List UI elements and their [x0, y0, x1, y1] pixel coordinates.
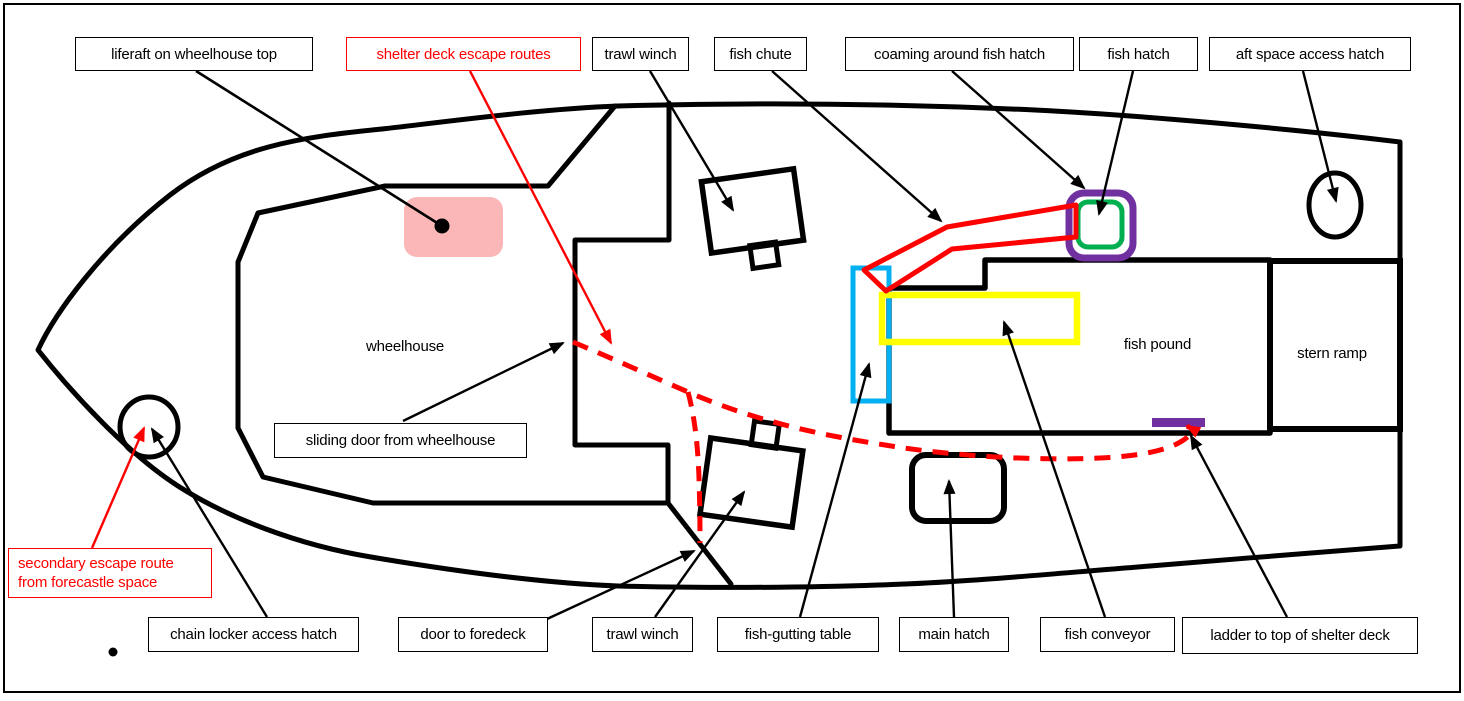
- secondary-escape-line-1: secondary escape route: [18, 554, 174, 574]
- main-hatch-shape: [912, 455, 1004, 521]
- arrow-main-hatch: [949, 481, 954, 617]
- label-liferaft-on-wheelhouse-top: liferaft on wheelhouse top: [75, 37, 313, 71]
- stray-mark: [109, 648, 118, 657]
- deck-text-stern-ramp: stern ramp: [1272, 343, 1392, 363]
- trawl-winch-bottom-shape: [700, 415, 806, 527]
- label-fish-conveyor: fish conveyor: [1040, 617, 1175, 652]
- arrow-ladder: [1191, 436, 1287, 617]
- fish-conveyor-shape: [882, 295, 1077, 342]
- arrow-fish-gutting-table: [800, 364, 869, 617]
- chain-locker-hatch-shape: [120, 397, 178, 457]
- arrow-coaming: [952, 71, 1084, 188]
- arrow-liferaft: [196, 71, 442, 226]
- deck-plan-drawing: [0, 0, 1464, 701]
- aft-space-hatch-shape: [1309, 173, 1361, 237]
- label-fish-hatch: fish hatch: [1079, 37, 1198, 71]
- arrow-trawl-winch-top: [650, 71, 733, 210]
- secondary-escape-line-2: from forecastle space: [18, 573, 157, 593]
- liferaft-locator-dot: [435, 219, 450, 234]
- vessel-escape-routes-diagram: liferaft on wheelhouse top shelter deck …: [0, 0, 1464, 701]
- label-trawl-winch-bottom: trawl winch: [592, 617, 693, 652]
- label-main-hatch: main hatch: [899, 617, 1009, 652]
- wheelhouse-outline: [238, 106, 731, 584]
- label-coaming-around-fish-hatch: coaming around fish hatch: [845, 37, 1074, 71]
- deck-text-wheelhouse: wheelhouse: [345, 336, 465, 356]
- label-shelter-deck-escape-routes: shelter deck escape routes: [346, 37, 581, 71]
- arrow-secondary-escape-route: [92, 428, 144, 548]
- ladder-shape: [1152, 418, 1205, 427]
- label-fish-gutting-table: fish-gutting table: [717, 617, 879, 652]
- label-ladder-to-top-of-shelter-deck: ladder to top of shelter deck: [1182, 617, 1418, 654]
- label-fish-chute: fish chute: [714, 37, 807, 71]
- liferaft-pad: [404, 197, 503, 257]
- label-door-to-foredeck: door to foredeck: [398, 617, 548, 652]
- label-chain-locker-access-hatch: chain locker access hatch: [148, 617, 359, 652]
- fish-chute-shape: [864, 205, 1076, 291]
- label-sliding-door-from-wheelhouse: sliding door from wheelhouse: [274, 423, 527, 458]
- escape-route-foredeck-dashed: [688, 392, 700, 543]
- label-aft-space-access-hatch: aft space access hatch: [1209, 37, 1411, 71]
- deck-text-fish-pound: fish pound: [1095, 334, 1220, 354]
- label-secondary-escape-route: secondary escape route from forecastle s…: [8, 548, 212, 598]
- label-trawl-winch-top: trawl winch: [592, 37, 689, 71]
